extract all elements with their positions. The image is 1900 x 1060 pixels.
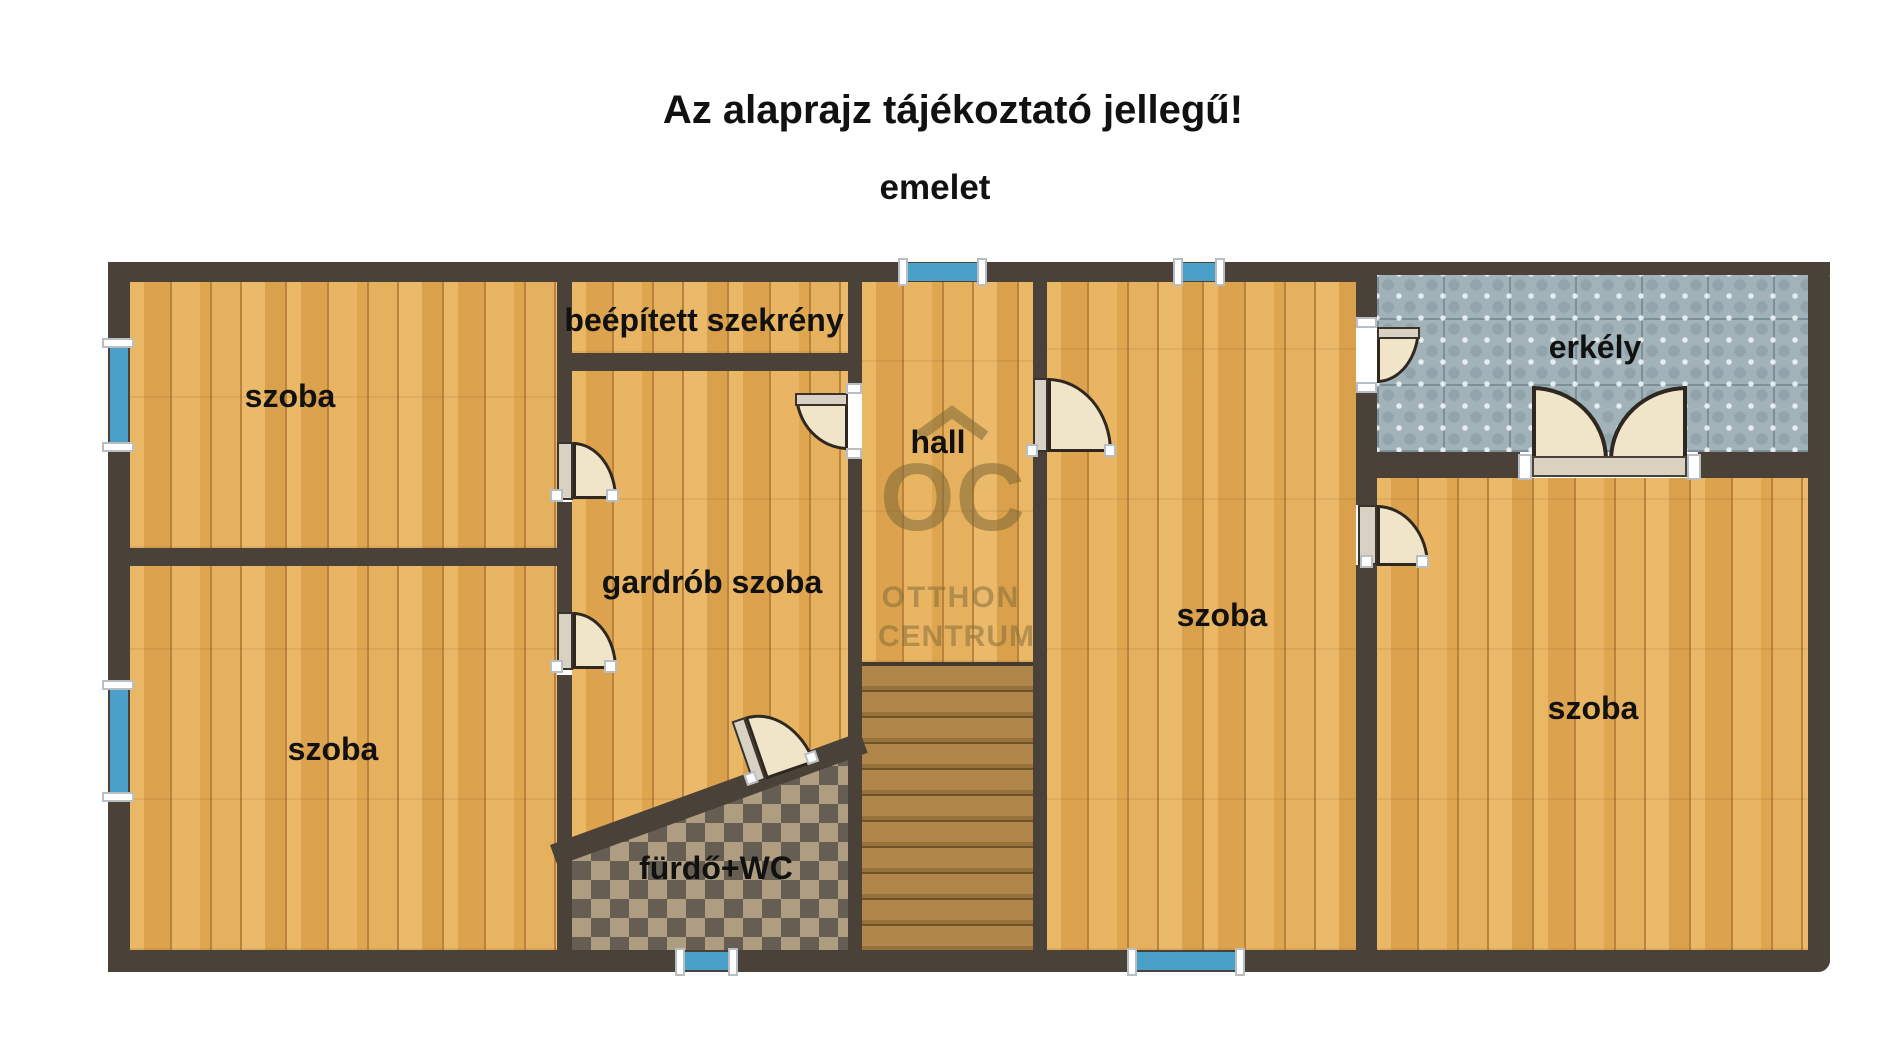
wall-closet-left-lower [557, 675, 572, 950]
window-left-top [110, 348, 128, 442]
window-cap [102, 680, 134, 690]
room-label-bottom-left: szoba [183, 731, 483, 768]
window-bottom-bathroom [685, 952, 728, 970]
wall-left-rooms-divider [130, 548, 557, 566]
window-cap [728, 948, 738, 976]
door-jamb [1356, 382, 1377, 393]
room-label-top-left: szoba [140, 378, 440, 415]
stairs [862, 662, 1033, 950]
door-jamb [606, 489, 619, 502]
room-label-walk-in-closet: gardrób szoba [512, 564, 912, 601]
window-bottom-center-room [1137, 952, 1235, 970]
window-cap [102, 792, 134, 802]
room-label-center: szoba [1072, 597, 1372, 634]
window-top-center-room [1183, 263, 1215, 281]
door-jamb [1687, 454, 1701, 480]
wall-balcony-top [1377, 262, 1830, 275]
door-jamb [846, 383, 862, 394]
window-cap [1235, 948, 1245, 976]
door-jamb [1360, 555, 1373, 568]
door-jamb [1356, 317, 1377, 328]
door-jamb [1518, 454, 1532, 480]
door-jamb [550, 489, 563, 502]
room-label-hall: hall [838, 424, 1038, 461]
window-cap [675, 948, 685, 976]
door-leaf [795, 393, 848, 406]
door-leaf [1377, 327, 1420, 339]
wall-center-right-middle [1356, 383, 1377, 505]
french-door-threshold [1532, 456, 1687, 477]
window-cap [1173, 258, 1183, 286]
door-jamb [1416, 555, 1429, 568]
window-cap [898, 258, 908, 286]
window-cap [1215, 258, 1225, 286]
wall-wardrobe-bottom [572, 353, 848, 371]
watermark-monogram: OC [880, 450, 1020, 546]
window-top-hall [908, 263, 977, 281]
window-cap [102, 442, 134, 452]
wall-balcony-bottom-right [1698, 452, 1808, 478]
wall-outer-right [1808, 262, 1830, 972]
page-title: Az alaprajz tájékoztató jellegű! [453, 88, 1453, 133]
door-jamb [550, 660, 563, 673]
window-cap [977, 258, 987, 286]
watermark-line2: CENTRUM [878, 622, 1024, 652]
room-label-built-in-wardrobe: beépített szekrény [454, 302, 954, 339]
window-left-bottom [110, 690, 128, 792]
floor-plan-page: Az alaprajz tájékoztató jellegű! emelet … [0, 0, 1900, 1060]
door-jamb [1104, 444, 1116, 457]
page-subtitle: emelet [435, 168, 1435, 208]
room-label-balcony: erkély [1445, 329, 1745, 366]
window-cap [1127, 948, 1137, 976]
wall-outer-bottom [108, 950, 1830, 972]
wall-hall-right-upper [1033, 282, 1047, 378]
room-label-bathroom: fürdő+WC [566, 850, 866, 887]
window-cap [102, 338, 134, 348]
door-jamb [1026, 444, 1038, 457]
room-label-right: szoba [1443, 690, 1743, 727]
door-jamb [604, 660, 617, 673]
wall-hall-right-lower [1033, 452, 1047, 950]
wall-balcony-bottom-left [1356, 452, 1520, 478]
door-jamb [846, 448, 862, 459]
